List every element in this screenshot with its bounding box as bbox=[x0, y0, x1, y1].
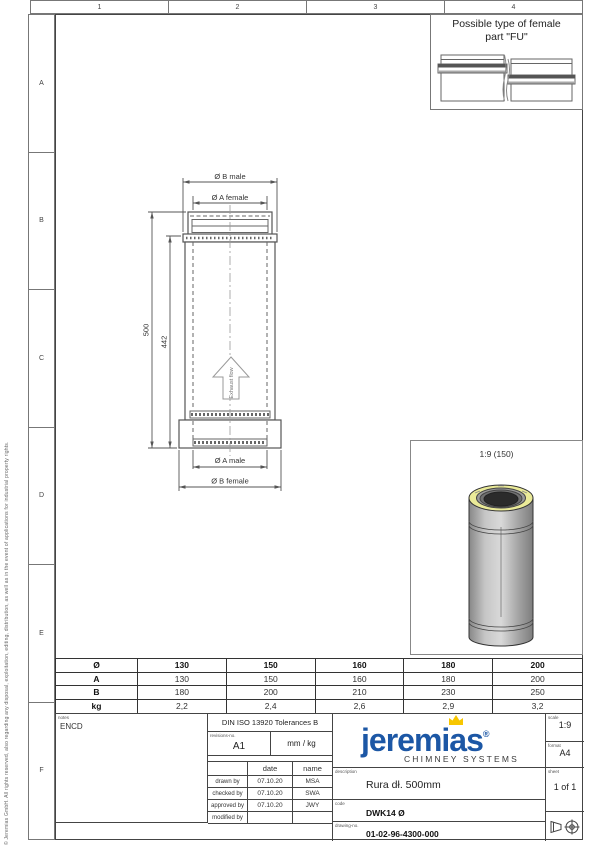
detail-scale-label: 1:9 (150) bbox=[411, 449, 582, 459]
registered-mark: ® bbox=[483, 729, 490, 739]
dim-cell: 2,4 bbox=[227, 700, 316, 714]
grid-col-label: 3 bbox=[307, 1, 445, 13]
dim-row-label: kg bbox=[56, 700, 138, 714]
pipe-bore bbox=[484, 492, 518, 506]
revision-number: A1 bbox=[208, 738, 270, 755]
grid-row-label: A bbox=[29, 15, 54, 153]
grid-col-label: 2 bbox=[169, 1, 307, 13]
brand-description-block: jeremias® CHIMNEY SYSTEMS description Ru… bbox=[333, 714, 546, 841]
dim-cell: 200 bbox=[227, 686, 316, 700]
sheet-cell: sheet 1 of 1 bbox=[546, 768, 584, 812]
dim-cell: 2,9 bbox=[404, 700, 493, 714]
dim-cell: 160 bbox=[316, 659, 405, 673]
dim-cell: 180 bbox=[404, 659, 493, 673]
sheet-label: sheet bbox=[546, 768, 584, 774]
dim-cell: 180 bbox=[138, 686, 227, 700]
dim-cell: 130 bbox=[138, 659, 227, 673]
signature-table: date name drawn by 07.10.20 MSA checked … bbox=[208, 761, 332, 823]
grid-column-band: 1 2 3 4 bbox=[30, 0, 583, 14]
title-block: notes ENCD DIN ISO 13920 Tolerances B re… bbox=[55, 713, 583, 840]
dim-cell: 150 bbox=[227, 659, 316, 673]
dim-cell: 130 bbox=[138, 673, 227, 687]
date-header: date bbox=[248, 762, 293, 775]
grid-col-label: 4 bbox=[445, 1, 582, 13]
sheet-value: 1 of 1 bbox=[546, 782, 584, 792]
brand-logo: jeremias® CHIMNEY SYSTEMS bbox=[333, 714, 545, 768]
dim-cell: 160 bbox=[316, 673, 405, 687]
signature-row: checked by 07.10.20 SWA bbox=[208, 788, 332, 800]
signature-row: approved by 07.10.20 JWY bbox=[208, 800, 332, 812]
dim-cell: 2,6 bbox=[316, 700, 405, 714]
dim-row-label: B bbox=[56, 686, 138, 700]
name-header: name bbox=[293, 762, 332, 775]
drawing-sheet: © Jeremias GmbH. All rights reserved, al… bbox=[0, 0, 600, 848]
tolerance-standard: DIN ISO 13920 Tolerances B bbox=[208, 714, 332, 732]
pipe-section-drawing: Exhaust flow Ø B male Ø A female 500 442… bbox=[130, 168, 340, 508]
grid-row-label: E bbox=[29, 565, 54, 703]
grid-row-label: C bbox=[29, 290, 54, 428]
dim-a-female-label: Ø A female bbox=[212, 193, 249, 202]
detail-view-box: 1:9 (150) bbox=[410, 440, 583, 655]
dim-b-male-label: Ø B male bbox=[214, 172, 245, 181]
dim-cell: 180 bbox=[404, 673, 493, 687]
grid-row-band: A B C D E F bbox=[28, 14, 55, 840]
scale-cell: scale 1:9 bbox=[546, 714, 584, 742]
code-cell: code DWK14 Ø bbox=[333, 800, 545, 822]
dim-cell: 210 bbox=[316, 686, 405, 700]
units-cell: mm / kg bbox=[271, 732, 332, 755]
dim-cell: 250 bbox=[493, 686, 582, 700]
dim-cell: 230 bbox=[404, 686, 493, 700]
dim-cell: 200 bbox=[493, 659, 582, 673]
pipe-3d-render bbox=[411, 441, 584, 656]
dim-442-label: 442 bbox=[160, 336, 169, 349]
grid-col-label: 1 bbox=[31, 1, 169, 13]
signature-row: modified by bbox=[208, 812, 332, 824]
dimension-table: Ø 130 150 160 180 200 A 130 150 160 180 … bbox=[55, 658, 583, 714]
grid-row-label: F bbox=[29, 703, 54, 840]
drawing-no-value: 01-02-96-4300-000 bbox=[333, 828, 545, 839]
scale-value: 1:9 bbox=[546, 720, 584, 730]
grid-row-label: B bbox=[29, 153, 54, 291]
brand-wordmark: jeremias® bbox=[333, 716, 545, 758]
description-cell: description Rura dł. 500mm bbox=[333, 768, 545, 800]
female-part-box: Possible type of female part "FU" bbox=[430, 14, 583, 110]
dim-row-label: Ø bbox=[56, 659, 138, 673]
dim-b-female-label: Ø B female bbox=[211, 477, 249, 486]
projection-symbol-cell bbox=[546, 812, 584, 841]
female-part-title: Possible type of female part "FU" bbox=[431, 18, 582, 44]
dim-500-label: 500 bbox=[142, 324, 151, 337]
dim-cell: 200 bbox=[493, 673, 582, 687]
grid-row-label: D bbox=[29, 428, 54, 566]
dim-cell: 150 bbox=[227, 673, 316, 687]
revision-cell: revisions-no. A1 bbox=[208, 732, 271, 755]
format-cell: format A4 bbox=[546, 742, 584, 768]
exhaust-flow-label: Exhaust flow bbox=[229, 367, 235, 398]
signature-row: drawn by 07.10.20 MSA bbox=[208, 776, 332, 788]
notes-value: ENCD bbox=[56, 720, 207, 731]
female-part-title-line1: Possible type of female bbox=[431, 18, 582, 31]
description-value: Rura dł. 500mm bbox=[333, 774, 545, 791]
dim-row-label: A bbox=[56, 673, 138, 687]
format-value: A4 bbox=[546, 748, 584, 758]
drawing-no-cell: drawing-no. 01-02-96-4300-000 bbox=[333, 822, 545, 841]
tolerance-revision-block: DIN ISO 13920 Tolerances B revisions-no.… bbox=[208, 714, 333, 841]
crown-icon bbox=[449, 715, 463, 725]
dim-cell: 2,2 bbox=[138, 700, 227, 714]
dim-a-male-label: Ø A male bbox=[215, 456, 245, 465]
dim-cell: 3,2 bbox=[493, 700, 582, 714]
sheet-info-column: scale 1:9 format A4 sheet 1 of 1 bbox=[546, 714, 584, 841]
copyright-note: © Jeremias GmbH. All rights reserved, al… bbox=[4, 340, 10, 845]
projection-symbol-icon bbox=[547, 813, 583, 841]
notes-cell: notes ENCD bbox=[56, 714, 208, 823]
code-value: DWK14 Ø bbox=[333, 806, 545, 818]
female-part-title-line2: part "FU" bbox=[431, 31, 582, 44]
